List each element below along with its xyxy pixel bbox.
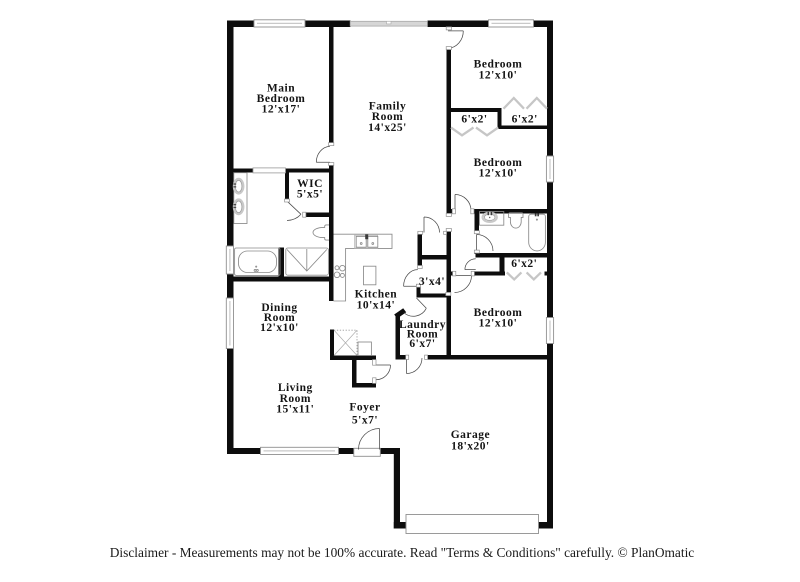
svg-text:12'x10': 12'x10' (479, 69, 518, 81)
svg-text:6'x2': 6'x2' (512, 114, 538, 126)
svg-text:6'x7': 6'x7' (409, 338, 435, 350)
svg-text:14'x25': 14'x25' (368, 122, 407, 134)
svg-text:6'x2': 6'x2' (461, 114, 487, 126)
svg-text:3'x4': 3'x4' (419, 276, 445, 288)
svg-text:Disclaimer - Measurements may: Disclaimer - Measurements may not be 100… (110, 545, 695, 560)
svg-text:10'x14': 10'x14' (357, 299, 396, 311)
svg-text:12'x17': 12'x17' (262, 103, 301, 115)
svg-text:18'x20': 18'x20' (451, 441, 490, 453)
svg-text:12'x10': 12'x10' (260, 322, 299, 334)
svg-text:6'x2': 6'x2' (511, 258, 537, 270)
svg-text:Garage: Garage (451, 429, 490, 441)
svg-text:5'x5': 5'x5' (297, 189, 323, 201)
svg-text:12'x10': 12'x10' (479, 168, 518, 180)
svg-text:12'x10': 12'x10' (479, 318, 518, 330)
svg-text:5'x7': 5'x7' (352, 414, 378, 426)
svg-text:Room: Room (372, 111, 403, 123)
svg-text:15'x11': 15'x11' (276, 403, 314, 415)
svg-text:Foyer: Foyer (349, 402, 380, 414)
